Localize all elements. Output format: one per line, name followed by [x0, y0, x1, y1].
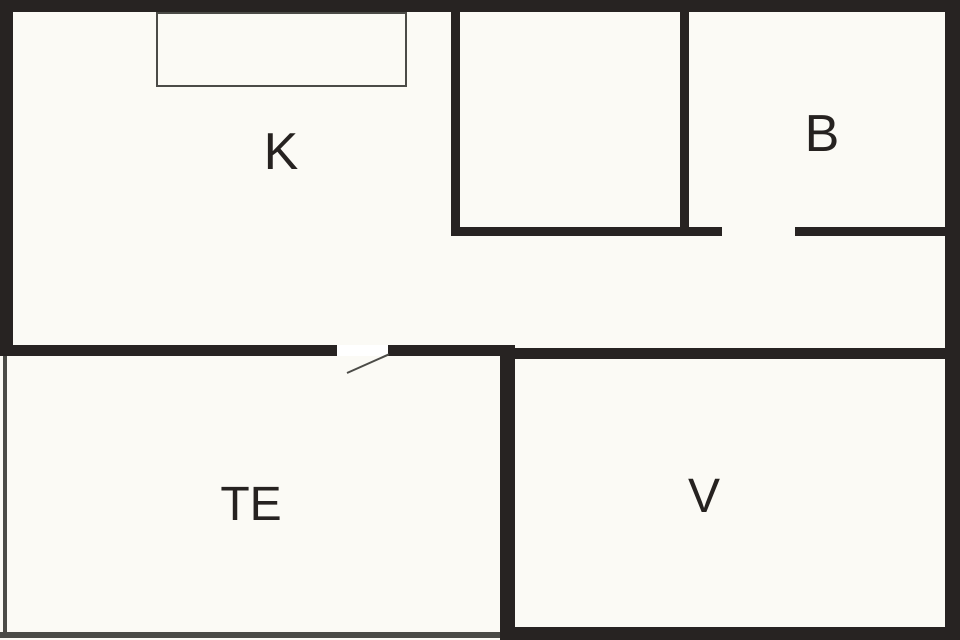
wall-v-top	[500, 348, 960, 359]
wall-te-top-right	[388, 345, 515, 356]
wall-b-bottom	[795, 227, 960, 236]
floor-plan: K B TE V	[0, 0, 960, 640]
wall-left-upper	[0, 0, 13, 356]
kitchen-counter	[156, 12, 407, 87]
room-label-kitchen: K	[264, 126, 299, 178]
wall-te-bottom	[0, 632, 500, 638]
wall-te-v	[500, 348, 515, 640]
wall-right	[945, 0, 960, 640]
wall-te-left	[3, 356, 7, 638]
wall-middle-bottom	[451, 227, 722, 236]
wall-v-bottom	[500, 627, 960, 640]
door-opening	[337, 345, 388, 356]
wall-middle-b	[680, 12, 689, 227]
room-label-terrace: TE	[220, 481, 281, 529]
wall-top	[0, 0, 960, 12]
room-label-bathroom: B	[805, 108, 840, 160]
wall-kitchen-middle	[451, 12, 460, 236]
room-label-livingroom: V	[688, 473, 720, 521]
door-swing-icon	[347, 353, 390, 374]
wall-te-top-left	[0, 345, 337, 356]
